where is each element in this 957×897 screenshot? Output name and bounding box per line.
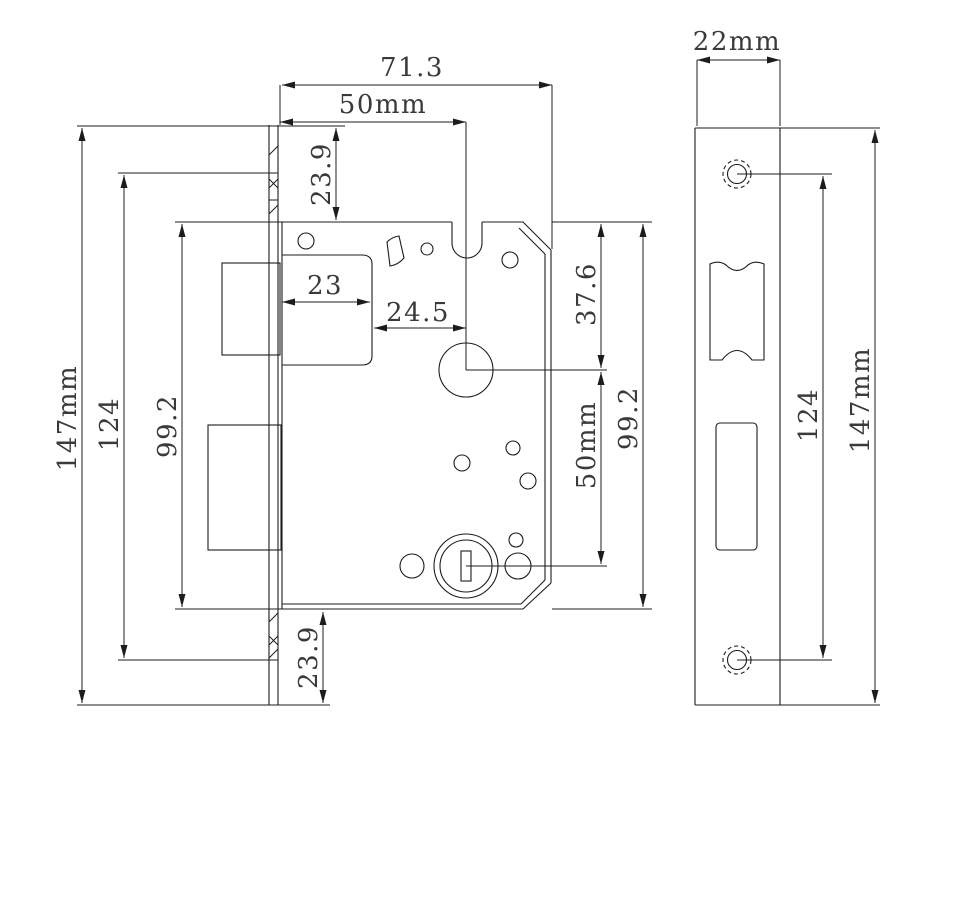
hole-left-of-cylinder [400, 554, 424, 578]
arrow-left [282, 299, 295, 306]
dim-body-height-left-label: 99.2 [153, 394, 183, 458]
hole-above-cylinder [509, 533, 523, 547]
arrow-down [79, 690, 86, 703]
arrow-up [79, 128, 86, 141]
case-chamfer-bottom-outer [523, 583, 551, 609]
arrow-down [333, 207, 340, 220]
arrow-down [320, 690, 327, 703]
dim-backset-label: 50mm [339, 90, 427, 120]
lock-dimension-drawing: 71.3 50mm 23.9 147mm 124 99.2 [0, 0, 957, 897]
arrow-up [320, 612, 327, 625]
hatch-tick [269, 613, 278, 622]
deadbolt-cutout [716, 423, 757, 550]
arrow-left [374, 325, 387, 332]
dim-top-offset-label: 23.9 [307, 142, 337, 206]
latch-bolt [222, 263, 280, 355]
hole-top-left [298, 233, 314, 249]
arrow-left [697, 57, 710, 64]
dim-plate-height-label: 147mm [846, 347, 876, 453]
hatch-tick [269, 649, 278, 658]
case-chamfer-top-inner [519, 228, 545, 254]
dim-latch-to-spindle-label: 24.5 [386, 298, 450, 328]
hole-mid-lower [520, 473, 536, 489]
dim-bottom-offset-label: 23.9 [294, 625, 324, 689]
arrow-up [640, 224, 647, 237]
arrow-left [282, 82, 295, 89]
hatch-tick [269, 205, 278, 214]
arrow-right [453, 119, 466, 126]
hole-mid-center [454, 455, 470, 471]
hole-top-right [502, 252, 518, 268]
dim-faceplate-height-label: 147mm [53, 365, 83, 471]
arrow-up [598, 372, 605, 385]
dim-overall-depth-label: 71.3 [380, 53, 444, 83]
arrow-right [767, 57, 780, 64]
arrow-down [598, 355, 605, 368]
dim-inner-height-label: 124 [95, 397, 125, 451]
cam-follower [387, 236, 404, 266]
arrow-up [333, 128, 340, 141]
hatch-tick [269, 146, 278, 155]
arrow-down [872, 690, 879, 703]
dim-plate-width-label: 22mm [693, 27, 781, 57]
dim-latch-width-label: 23 [307, 271, 343, 301]
arrow-up [820, 176, 827, 189]
arrow-up [179, 224, 186, 237]
deadbolt [208, 425, 281, 550]
arrow-up [872, 130, 879, 143]
arrow-down [179, 594, 186, 607]
arrow-down [598, 551, 605, 564]
hole-mid-right [506, 441, 520, 455]
arrow-down [640, 594, 647, 607]
dim-screw-spacing-label: 124 [794, 388, 824, 442]
dim-spindle-to-cylinder-label: 50mm [572, 401, 602, 489]
arrow-left [280, 119, 293, 126]
arrow-down [121, 645, 128, 658]
dim-body-height-right-label: 99.2 [614, 386, 644, 450]
arrow-up [121, 175, 128, 188]
case-top-notch [452, 222, 482, 258]
arrow-down [820, 645, 827, 658]
front-view: 71.3 50mm 23.9 147mm 124 99.2 [53, 53, 652, 705]
arrow-up [598, 224, 605, 237]
dim-top-to-spindle-label: 37.6 [572, 262, 602, 326]
arrow-right [453, 325, 466, 332]
arrow-right [357, 299, 370, 306]
side-view: 22mm 124 147mm [693, 27, 880, 705]
arrow-right [539, 82, 552, 89]
latch-cutout [710, 262, 764, 360]
technical-drawing-page: 71.3 50mm 23.9 147mm 124 99.2 [0, 0, 957, 897]
hole-small-top [421, 243, 433, 255]
